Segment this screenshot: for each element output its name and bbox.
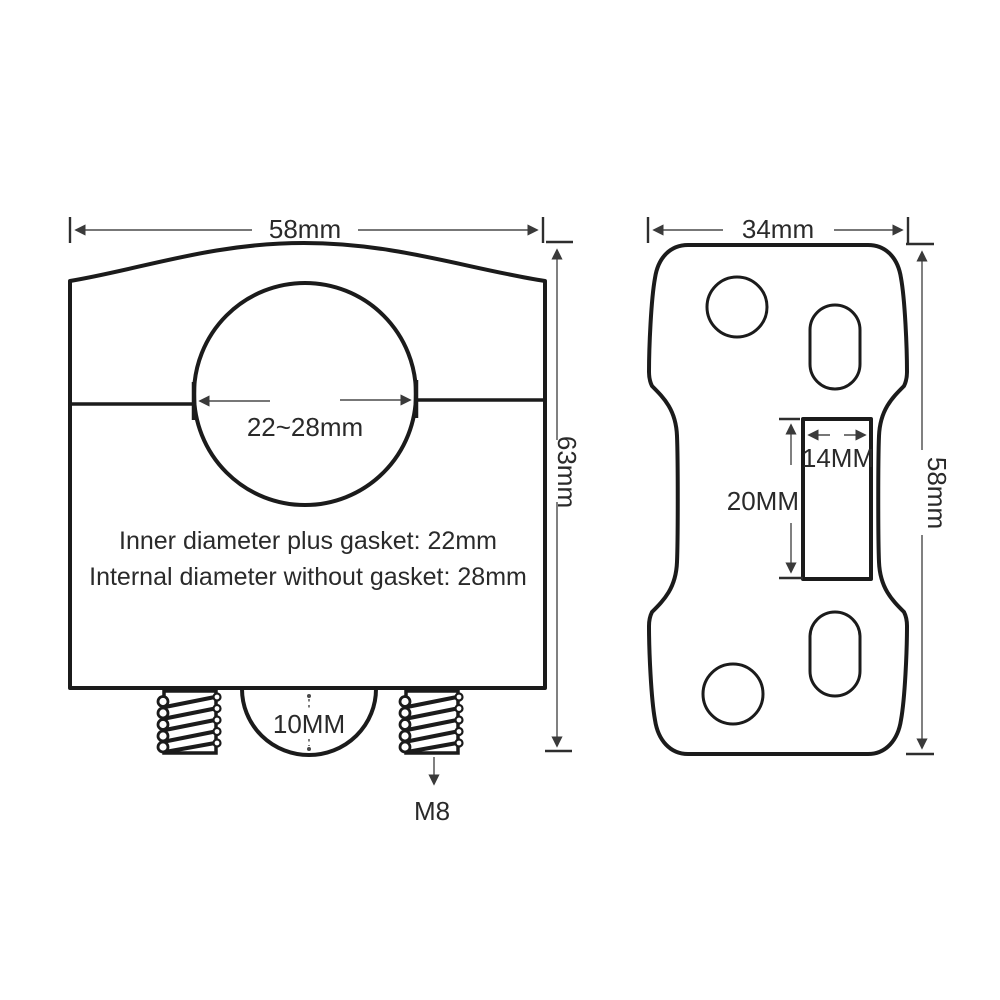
side-width-dimension: 34mm: [648, 214, 908, 244]
top-bolt-hole: [707, 277, 767, 337]
front-height-dimension: 63mm: [545, 242, 582, 751]
bore-circle: [194, 283, 416, 505]
slot-width-label: 14MM: [802, 443, 874, 473]
thread-callout: M8: [414, 757, 450, 826]
note-line-2: Internal diameter without gasket: 28mm: [89, 563, 527, 591]
bottom-bolt-hole: [703, 664, 763, 724]
front-body-outline: [70, 243, 545, 688]
side-width-label: 34mm: [742, 214, 814, 244]
left-threaded-stud: [158, 691, 221, 753]
thread-callout-label: M8: [414, 796, 450, 826]
slot-length-label: 20MM: [727, 486, 799, 516]
side-height-dimension: 58mm: [906, 244, 952, 754]
note-line-1: Inner diameter plus gasket: 22mm: [119, 527, 497, 555]
front-width-label: 58mm: [269, 214, 341, 244]
bottom-oval-slot: [810, 612, 860, 696]
front-width-dimension: 58mm: [70, 214, 543, 244]
bore-dimension-label: 22~28mm: [247, 412, 363, 442]
side-view: 14MM 20MM 34mm: [648, 214, 952, 754]
front-view: 22~28mm 58mm 63mm Inner diameter plus ga…: [70, 214, 582, 826]
slot-width-dimension: 14MM: [802, 435, 874, 473]
front-height-label: 63mm: [552, 436, 582, 508]
diagram-page: 22~28mm 58mm 63mm Inner diameter plus ga…: [0, 0, 1000, 1000]
right-threaded-stud: [400, 691, 463, 753]
slot-length-dimension: 20MM: [727, 419, 803, 578]
side-height-label: 58mm: [922, 457, 952, 529]
technical-drawing: 22~28mm 58mm 63mm Inner diameter plus ga…: [0, 0, 1000, 1000]
dome-dimension-label: 10MM: [273, 709, 345, 739]
bore-dimension: 22~28mm: [194, 380, 416, 442]
top-oval-slot: [810, 305, 860, 389]
dome-dimension: 10MM: [273, 694, 345, 751]
